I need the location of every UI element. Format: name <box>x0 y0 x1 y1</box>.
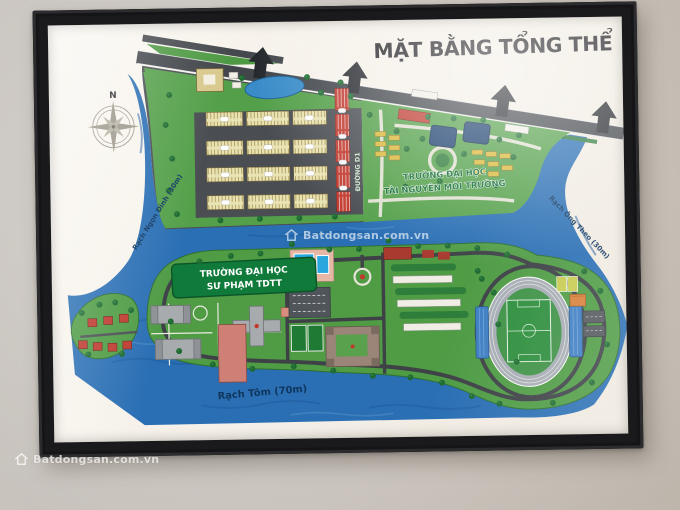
campus-pond <box>429 125 457 148</box>
football-pitch <box>507 300 551 362</box>
map-paper: ĐƯỜNG SỐ 7 <box>48 17 628 443</box>
courtyard-hall <box>326 326 380 367</box>
salmon-hall <box>218 324 247 382</box>
red-building <box>384 247 412 259</box>
watermark-house-icon <box>14 452 29 467</box>
road-label-d1: ĐƯỜNG D1 <box>352 152 362 192</box>
site-plan-map: ĐƯỜNG SỐ 7 <box>48 17 628 443</box>
compass-rose-icon: N <box>87 91 139 153</box>
island-roundabout <box>354 269 370 285</box>
campus-pond <box>463 122 491 145</box>
picture-frame: ĐƯỜNG SỐ 7 <box>33 1 644 457</box>
left-campus-sign: TRƯỜNG ĐẠI HỌC SƯ PHẠM TDTT <box>171 257 317 298</box>
map-title: MẶT BẰNG TỔNG THỂ <box>373 28 613 63</box>
red-housing-strip <box>335 88 351 211</box>
stadium-service-building <box>570 294 586 306</box>
compass-north-label: N <box>109 91 117 101</box>
